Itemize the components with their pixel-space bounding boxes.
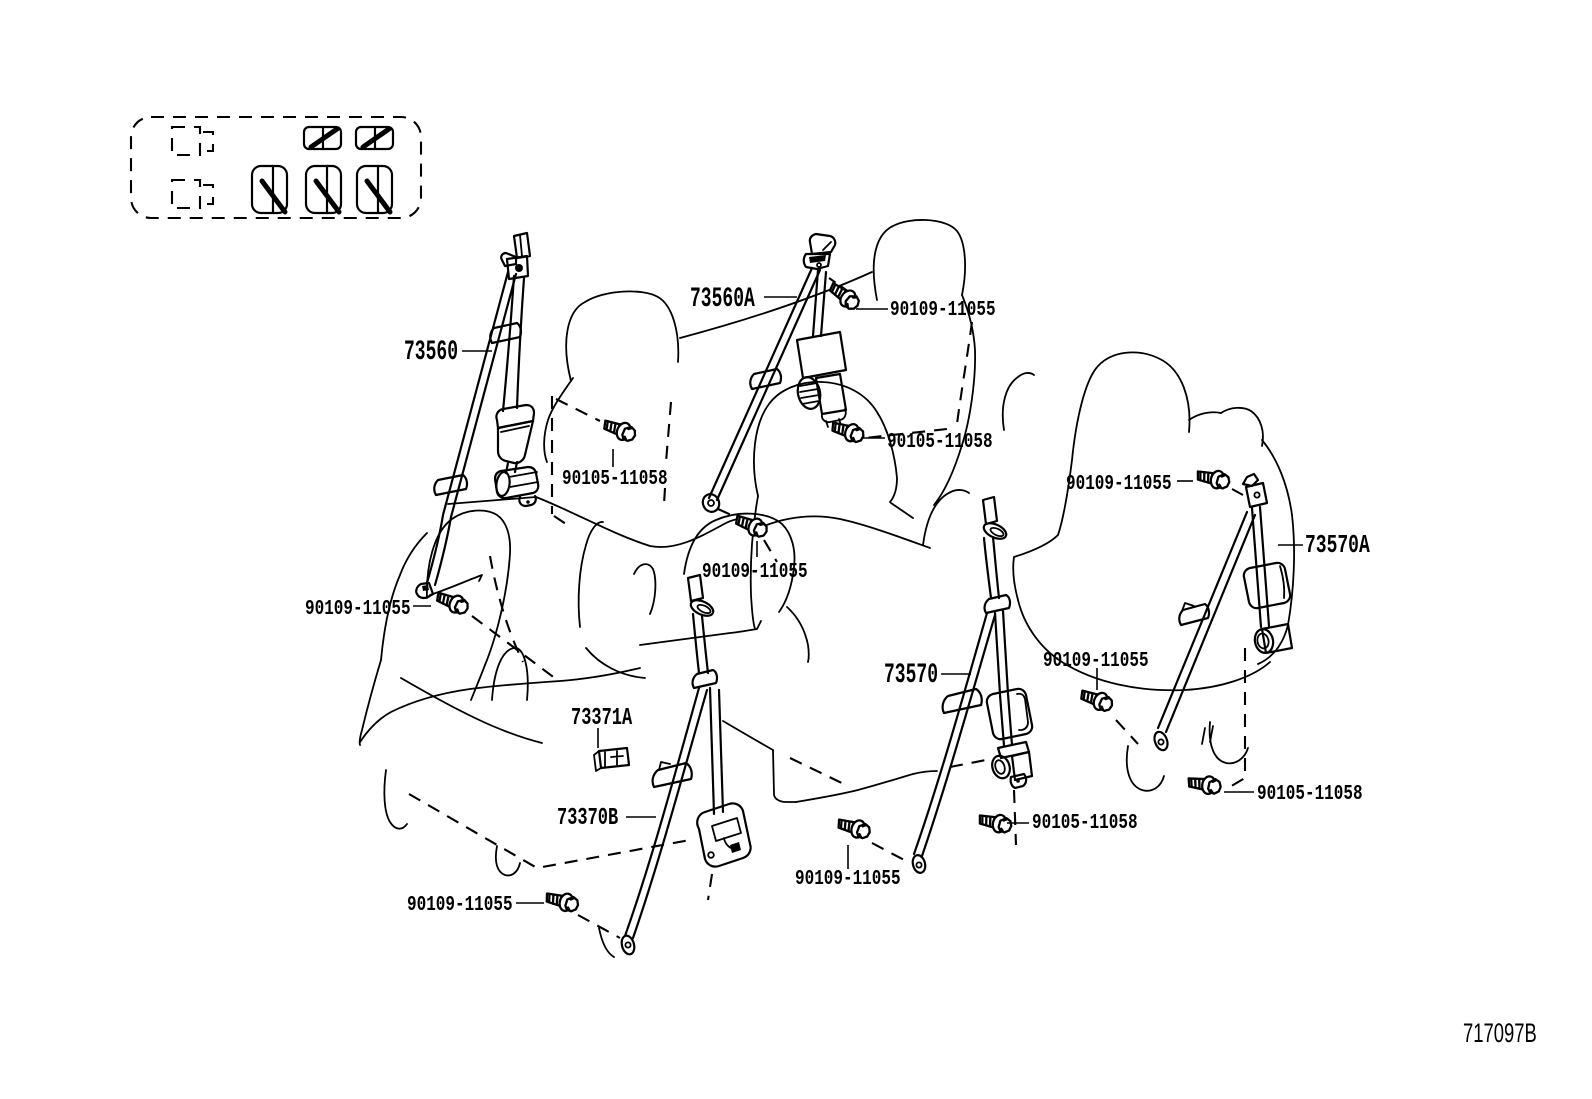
svg-text:90105-11058: 90105-11058 — [1257, 781, 1363, 806]
svg-text:73560: 73560 — [404, 336, 458, 368]
svg-text:73370B: 73370B — [557, 806, 618, 832]
svg-text:73560A: 73560A — [690, 283, 755, 315]
svg-text:73371A: 73371A — [571, 706, 633, 732]
svg-text:90109-11055: 90109-11055 — [407, 892, 513, 917]
svg-text:90109-11055: 90109-11055 — [795, 866, 901, 891]
svg-text:90109-11055: 90109-11055 — [305, 596, 411, 621]
svg-text:90109-11055: 90109-11055 — [1043, 648, 1149, 673]
svg-text:90105-11058: 90105-11058 — [887, 429, 993, 454]
svg-text:90109-11055: 90109-11055 — [890, 297, 996, 322]
svg-text:90105-11058: 90105-11058 — [1032, 810, 1138, 835]
svg-text:73570A: 73570A — [1305, 530, 1370, 560]
svg-text:90109-11055: 90109-11055 — [702, 559, 808, 584]
svg-text:90109-11055: 90109-11055 — [1066, 471, 1172, 496]
svg-text:717097B: 717097B — [1463, 1018, 1537, 1048]
svg-text:73570: 73570 — [884, 659, 938, 691]
svg-text:90105-11058: 90105-11058 — [562, 466, 668, 491]
